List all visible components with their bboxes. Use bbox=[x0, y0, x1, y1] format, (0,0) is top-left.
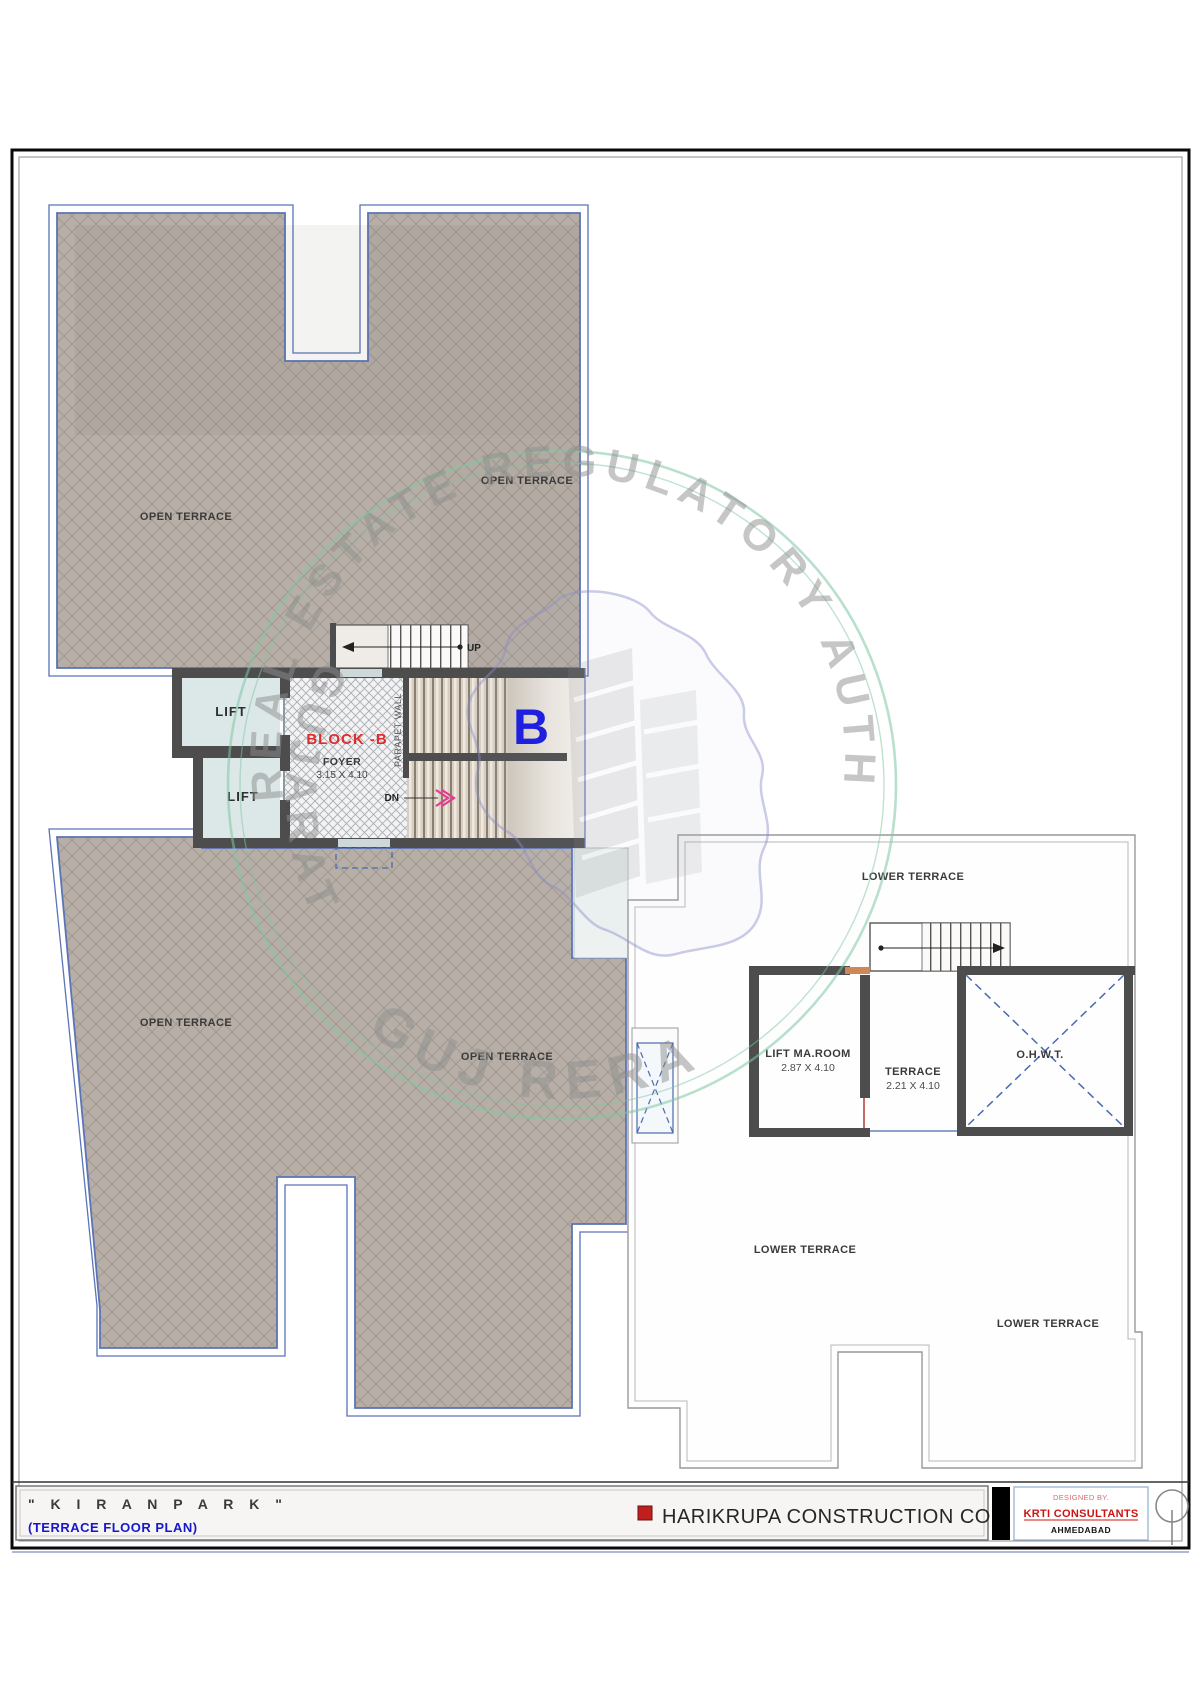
consultant-city: AHMEDABAD bbox=[1051, 1525, 1111, 1535]
lift-1-label: LIFT bbox=[215, 704, 246, 719]
lift-machine-room-dim: 2.87 X 4.10 bbox=[781, 1062, 835, 1074]
terrace-floor-plan-drawing: UP bbox=[0, 0, 1200, 1697]
lower-terrace-label-top: LOWER TERRACE bbox=[862, 871, 964, 883]
lower-terrace-label-mid: LOWER TERRACE bbox=[754, 1244, 856, 1256]
parapet-wall bbox=[403, 678, 409, 778]
foyer-label: FOYER bbox=[323, 756, 361, 768]
project-title: " K I R A N P A R K " bbox=[28, 1496, 288, 1512]
company-name: HARIKRUPA CONSTRUCTION CO. bbox=[662, 1506, 997, 1528]
open-terrace-label-bottom-left: OPEN TERRACE bbox=[140, 1017, 232, 1029]
dn-label: DN bbox=[385, 793, 399, 804]
plan-name: (TERRACE FLOOR PLAN) bbox=[28, 1520, 198, 1535]
consultant-name: KRTI CONSULTANTS bbox=[1024, 1508, 1139, 1520]
drawing-sheet: UP bbox=[0, 0, 1200, 1697]
title-divider-bar bbox=[992, 1487, 1010, 1540]
lower-terrace-staircase bbox=[870, 923, 1010, 971]
lower-open-terrace-region bbox=[49, 829, 634, 1416]
up-label: UP bbox=[467, 643, 481, 654]
parapet-wall-label: PARAPET WALL bbox=[393, 693, 403, 767]
open-terrace-label-top-left: OPEN TERRACE bbox=[140, 511, 232, 523]
lintel-marker bbox=[845, 967, 870, 974]
terrace-room-dim: 2.21 X 4.10 bbox=[886, 1080, 940, 1092]
title-block: " K I R A N P A R K " (TERRACE FLOOR PLA… bbox=[12, 1482, 1189, 1545]
company-bullet-icon bbox=[638, 1506, 652, 1520]
designed-by-label: DESIGNED BY. bbox=[1053, 1493, 1109, 1502]
up-staircase: UP bbox=[330, 623, 481, 670]
lower-terrace-label-right: LOWER TERRACE bbox=[997, 1318, 1099, 1330]
terrace-room-label: TERRACE bbox=[885, 1066, 941, 1078]
lift-machine-room-label: LIFT MA.ROOM bbox=[765, 1048, 850, 1060]
ohwt-label: O.H.W.T. bbox=[1016, 1049, 1063, 1061]
consultant-logo-icon bbox=[1156, 1490, 1188, 1545]
